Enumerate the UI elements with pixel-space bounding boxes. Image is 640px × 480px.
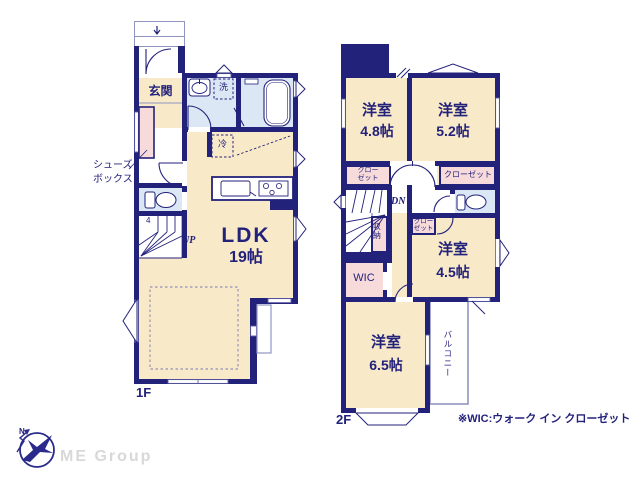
room52-size-label: 5.2帖 (423, 124, 483, 139)
closet48-label-line1: クロー (348, 167, 388, 174)
ldk-size-label: 19帖 (206, 250, 286, 267)
floor2-label: 2F (336, 413, 351, 427)
toilet-icon-1f (145, 192, 176, 208)
stairs-down-label: DN (391, 197, 405, 208)
kitchen-sink-icon (221, 181, 250, 196)
floor1-label: 1F (136, 386, 151, 400)
terrace-step (257, 305, 271, 353)
storage-label: 収納 (372, 222, 380, 250)
floor-plan-drawing (0, 0, 640, 480)
closet45-label-line2: ゼット (409, 226, 438, 233)
company-logo-text: ME Group (60, 449, 152, 466)
floor1-plan (123, 22, 306, 385)
laundry-label: 洗 (219, 83, 228, 92)
compass-north-label: N (19, 428, 25, 436)
porch-step-1 (135, 22, 185, 37)
shoebox-label-line1: シューズ (93, 161, 130, 172)
compass-bird (22, 435, 53, 462)
room48-size-label: 4.8帖 (347, 124, 407, 139)
stairs-step-number: 4 (146, 217, 150, 225)
room65-size-label: 6.5帖 (356, 358, 416, 373)
genkan-label: 玄関 (138, 85, 183, 98)
room-65-base (346, 302, 425, 408)
entrance-alcove (139, 46, 178, 78)
floor-plan-page: 玄関 洗 冷 シューズ ボックス UP 4 LDK 19帖 1F 洋室 4.8帖… (0, 0, 640, 480)
room52-name-label: 洋室 (423, 103, 483, 119)
kitchen-counter (212, 177, 293, 200)
stairs-up-label: UP (182, 236, 195, 247)
room65-name-label: 洋室 (356, 335, 416, 351)
wic-note: ※WIC:ウォーク イン クローゼット (458, 414, 630, 426)
doorway-area (390, 166, 437, 187)
ldk-name-label: LDK (206, 225, 286, 247)
room48-name-label: 洋室 (347, 103, 407, 119)
hall-2f-lower (392, 213, 407, 302)
room45-size-label: 4.5帖 (423, 265, 483, 280)
room45-name-label: 洋室 (423, 242, 483, 258)
toilet-icon-2f (457, 195, 486, 210)
wic-label: WIC (344, 273, 384, 285)
shoebox-label-line2: ボックス (93, 175, 130, 186)
closet48-label-line2: ゼット (348, 175, 388, 182)
fridge-label: 冷 (218, 140, 227, 149)
balcony-drain-mark (472, 301, 485, 314)
sink-icon (189, 79, 210, 96)
balcony-label: バルコニー (443, 330, 452, 390)
porch-step-2 (135, 37, 185, 47)
closet52-label: クローゼット (438, 171, 498, 179)
